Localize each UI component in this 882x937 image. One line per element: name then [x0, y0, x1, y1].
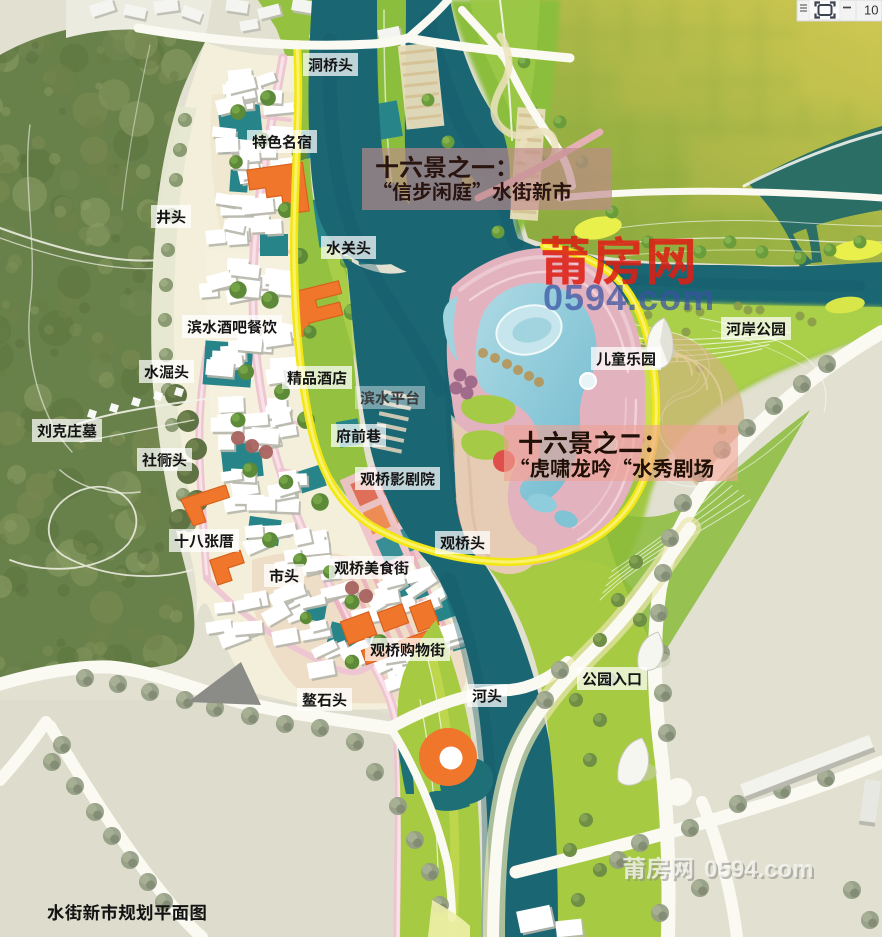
svg-text:0594.com: 0594.com	[543, 277, 715, 318]
svg-text:0594.com: 0594.com	[704, 856, 813, 883]
svg-text:10: 10	[864, 3, 878, 18]
